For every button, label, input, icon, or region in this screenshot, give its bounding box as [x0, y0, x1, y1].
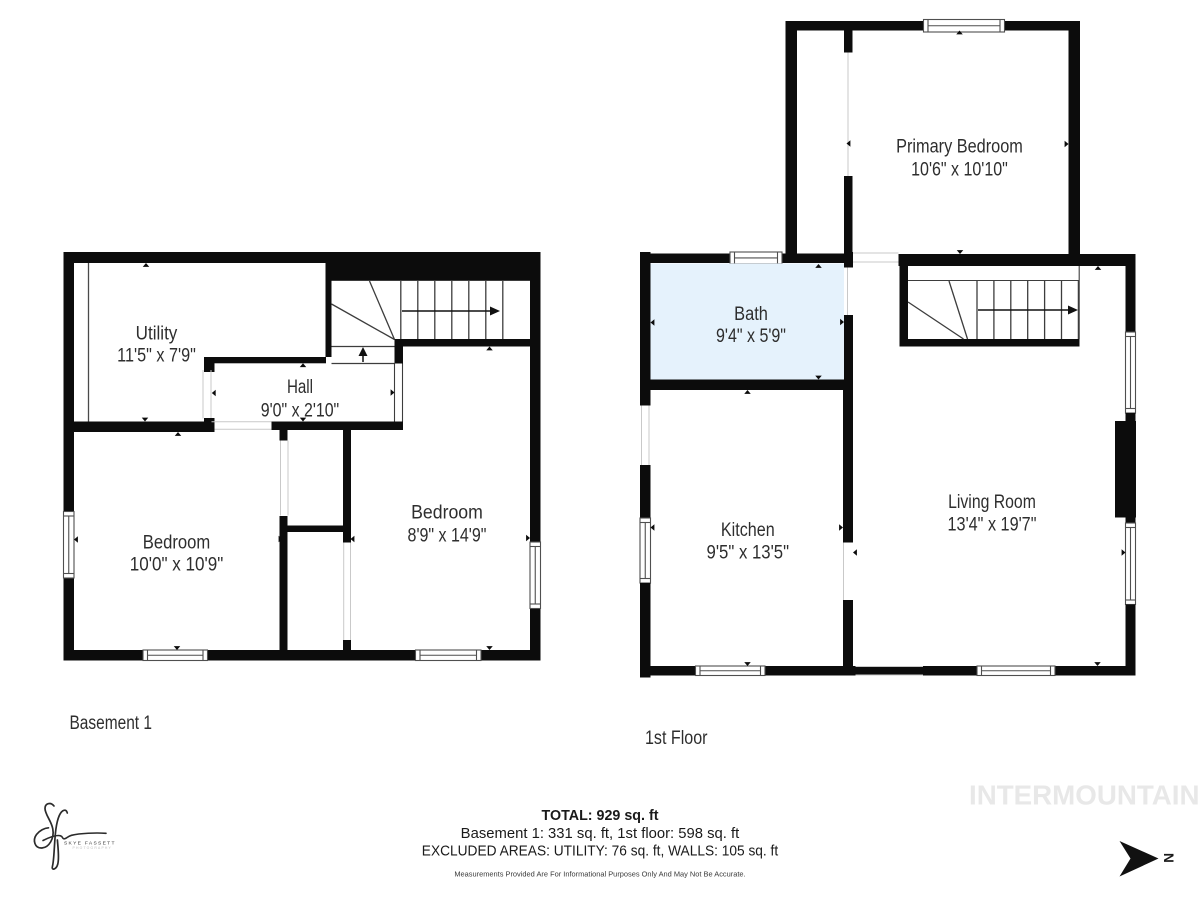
svg-text:1st Floor: 1st Floor — [645, 728, 708, 749]
svg-text:EXCLUDED AREAS: UTILITY: 76 sq: EXCLUDED AREAS: UTILITY: 76 sq. ft, WALL… — [422, 844, 778, 860]
svg-text:10'0" x 10'9": 10'0" x 10'9" — [130, 555, 224, 576]
svg-text:N: N — [1161, 853, 1176, 863]
svg-text:Bath: Bath — [734, 304, 768, 325]
svg-text:Bedroom: Bedroom — [411, 502, 483, 523]
svg-text:INTERMOUNTAIN: INTERMOUNTAIN — [969, 780, 1200, 811]
svg-text:9'5" x 13'5": 9'5" x 13'5" — [707, 542, 790, 563]
svg-text:11'5" x 7'9": 11'5" x 7'9" — [117, 345, 196, 366]
svg-text:8'9" x 14'9": 8'9" x 14'9" — [408, 525, 487, 546]
svg-text:Measurements Provided Are For: Measurements Provided Are For Informatio… — [454, 872, 745, 879]
svg-text:PHOTOGRAPHY: PHOTOGRAPHY — [73, 846, 113, 850]
svg-text:Utility: Utility — [136, 324, 178, 345]
svg-text:9'4" x 5'9": 9'4" x 5'9" — [716, 326, 786, 347]
svg-text:Bedroom: Bedroom — [143, 533, 211, 554]
svg-text:Basement 1: 331 sq. ft, 1st fl: Basement 1: 331 sq. ft, 1st floor: 598 s… — [461, 826, 740, 842]
svg-text:Hall: Hall — [287, 377, 313, 398]
svg-text:Basement 1: Basement 1 — [70, 713, 153, 734]
svg-text:Kitchen: Kitchen — [721, 520, 775, 541]
svg-text:10'6" x 10'10": 10'6" x 10'10" — [911, 159, 1008, 180]
svg-text:9'0" x 2'10": 9'0" x 2'10" — [261, 400, 339, 421]
svg-text:TOTAL: 929 sq. ft: TOTAL: 929 sq. ft — [542, 808, 659, 824]
svg-text:Primary Bedroom: Primary Bedroom — [896, 137, 1023, 158]
svg-text:Living Room: Living Room — [948, 492, 1036, 513]
svg-text:13'4" x 19'7": 13'4" x 19'7" — [948, 514, 1037, 535]
